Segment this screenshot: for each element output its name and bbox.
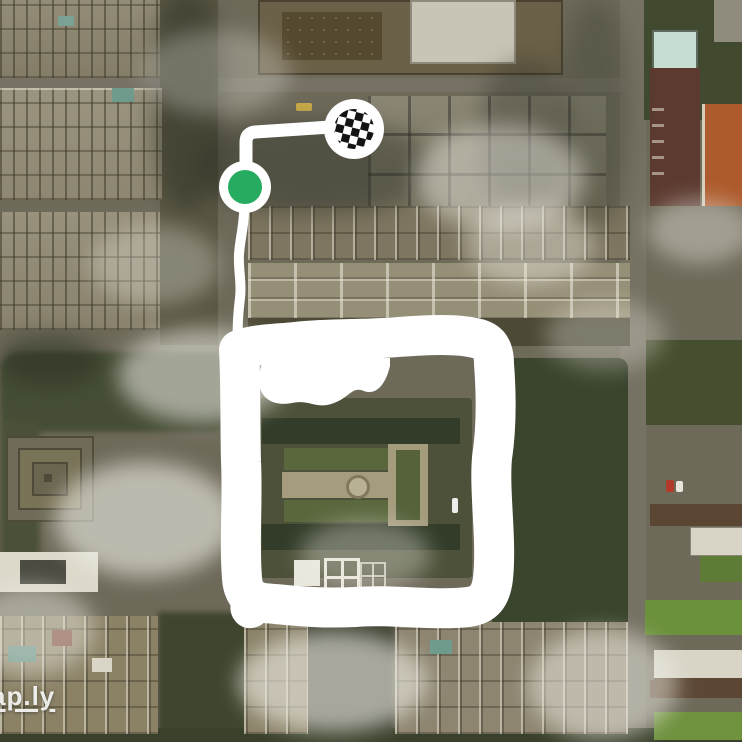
route-overlay bbox=[0, 0, 742, 742]
start-marker[interactable] bbox=[219, 161, 271, 213]
route-loop-corner-bulge bbox=[230, 600, 268, 628]
route-loop-inner-blob bbox=[259, 358, 390, 405]
checkered-flag-icon bbox=[334, 109, 374, 149]
watermark-attribution[interactable]: ap.ly bbox=[0, 681, 55, 712]
finish-marker[interactable] bbox=[324, 99, 384, 159]
map-canvas[interactable]: ap.ly bbox=[0, 0, 742, 742]
green-dot-icon bbox=[228, 170, 262, 204]
